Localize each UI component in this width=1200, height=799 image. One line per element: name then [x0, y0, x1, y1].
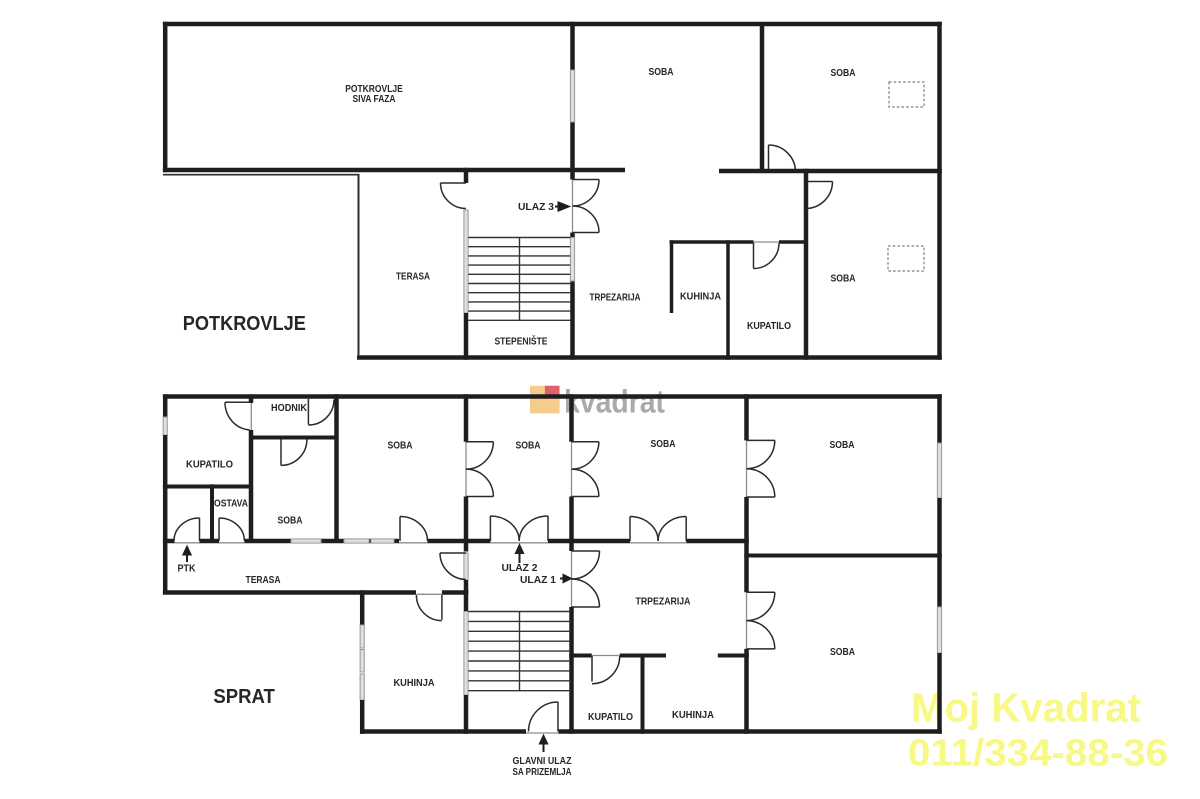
svg-text:SA PRIZEMLJA: SA PRIZEMLJA	[513, 766, 572, 778]
svg-text:SOBA: SOBA	[651, 438, 676, 450]
svg-text:SOBA: SOBA	[830, 439, 855, 451]
svg-text:SOBA: SOBA	[388, 440, 413, 452]
svg-text:PTK: PTK	[178, 563, 196, 575]
svg-text:KUPATILO: KUPATILO	[588, 711, 633, 723]
svg-text:POTKROVLJE: POTKROVLJE	[183, 313, 306, 335]
svg-text:STEPENIŠTE: STEPENIŠTE	[495, 335, 548, 348]
svg-text:SOBA: SOBA	[278, 515, 303, 527]
svg-text:KUHINJA: KUHINJA	[680, 291, 721, 303]
svg-text:ULAZ 1: ULAZ 1	[520, 574, 556, 586]
svg-text:ULAZ 2: ULAZ 2	[502, 562, 538, 574]
svg-text:TRPEZARIJA: TRPEZARIJA	[590, 292, 641, 304]
svg-text:SOBA: SOBA	[516, 440, 541, 452]
svg-text:SOBA: SOBA	[649, 66, 674, 78]
svg-text:Moj Kvadrat: Moj Kvadrat	[911, 685, 1141, 731]
svg-text:SOBA: SOBA	[830, 646, 855, 658]
svg-text:HODNIK: HODNIK	[271, 402, 307, 414]
svg-text:KUPATILO: KUPATILO	[186, 459, 233, 471]
svg-text:SOBA: SOBA	[831, 67, 856, 79]
svg-text:KUPATILO: KUPATILO	[747, 320, 791, 332]
svg-text:TERASA: TERASA	[396, 271, 430, 283]
svg-text:SPRAT: SPRAT	[213, 686, 275, 708]
svg-text:SOBA: SOBA	[831, 273, 856, 285]
svg-text:011/334-88-36: 011/334-88-36	[908, 733, 1168, 775]
svg-text:TERASA: TERASA	[246, 574, 281, 586]
svg-text:OSTAVA: OSTAVA	[214, 498, 248, 510]
svg-text:KUHINJA: KUHINJA	[394, 677, 435, 689]
svg-text:KUHINJA: KUHINJA	[672, 709, 714, 721]
svg-text:SIVA FAZA: SIVA FAZA	[353, 93, 396, 105]
svg-text:ULAZ 3: ULAZ 3	[518, 201, 554, 213]
svg-text:kvadrat: kvadrat	[564, 384, 665, 420]
svg-text:TRPEZARIJA: TRPEZARIJA	[636, 596, 691, 608]
